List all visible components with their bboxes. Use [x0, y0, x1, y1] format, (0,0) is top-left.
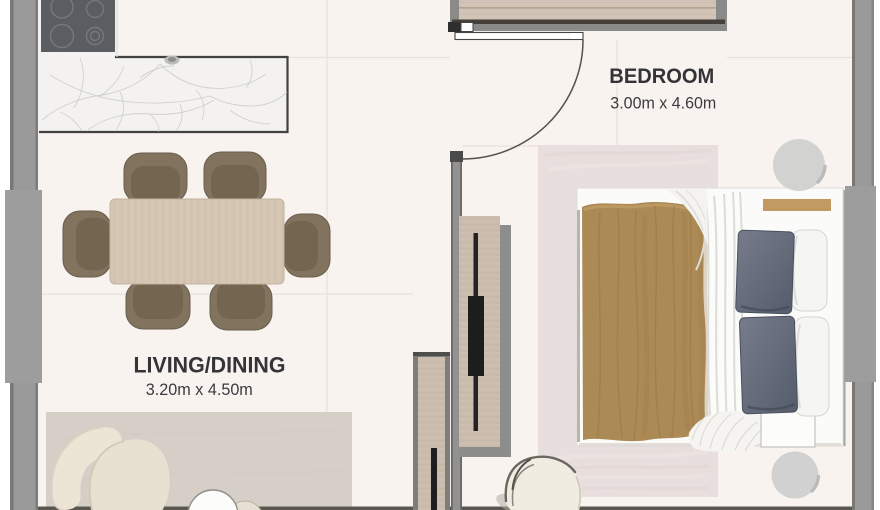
svg-text:BEDROOM: BEDROOM — [609, 65, 714, 88]
svg-text:3.20m x 4.50m: 3.20m x 4.50m — [146, 381, 253, 399]
svg-text:LIVING/DINING: LIVING/DINING — [134, 353, 286, 378]
svg-text:3.00m x 4.60m: 3.00m x 4.60m — [610, 95, 716, 113]
